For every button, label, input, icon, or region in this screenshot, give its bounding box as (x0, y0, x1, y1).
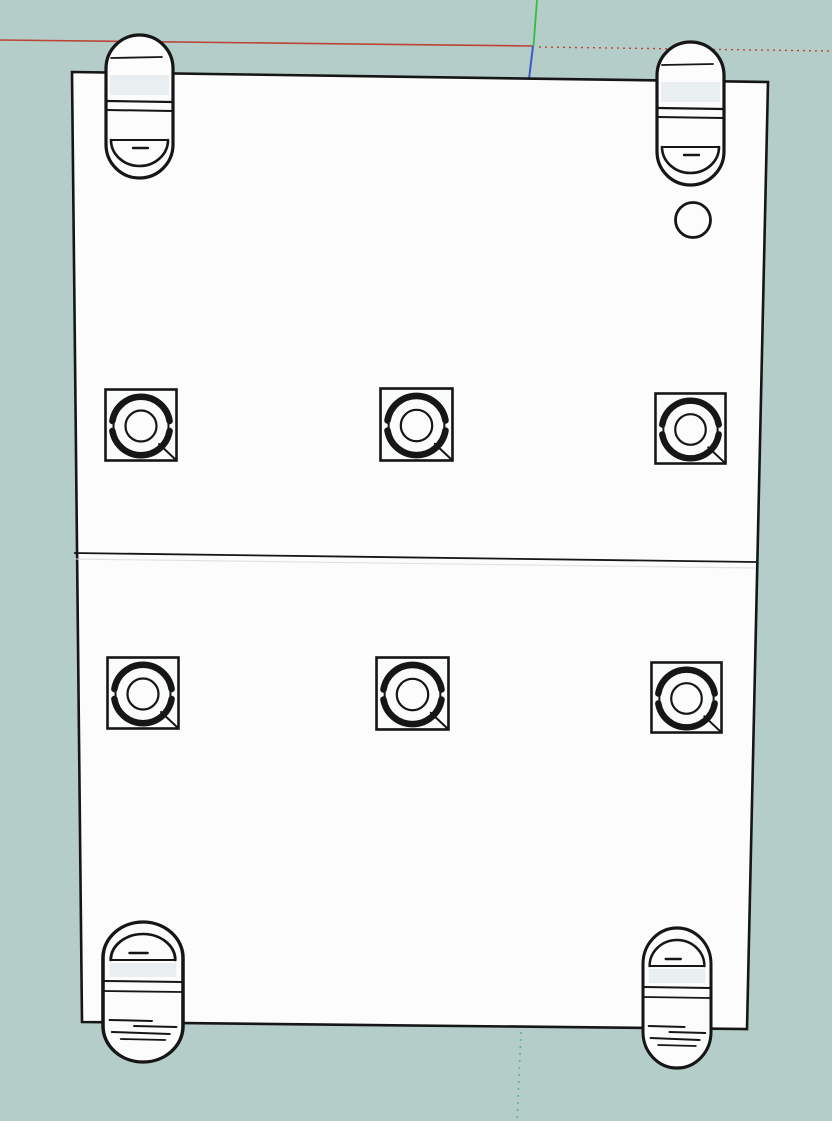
detail-ring (675, 414, 706, 445)
detail-edge (658, 108, 723, 109)
twist-lock-boss-row1-left[interactable] (106, 390, 177, 461)
detail-edge (649, 1026, 685, 1027)
detail-ring (128, 679, 159, 710)
detail-shading (649, 969, 706, 983)
mounting-clip-bottom-left[interactable] (103, 922, 183, 1062)
detail-ring (126, 411, 157, 442)
detail-edge (662, 64, 713, 65)
viewport-canvas[interactable] (0, 0, 832, 1121)
mounting-clip-top-right[interactable] (657, 42, 724, 185)
model-layer (72, 35, 768, 1068)
modeling-viewport[interactable] (0, 0, 832, 1121)
detail-edge (658, 117, 723, 118)
detail-shading (110, 963, 177, 977)
detail-edge (107, 101, 172, 102)
detail-edge (644, 997, 710, 998)
twist-lock-boss-row2-left[interactable] (108, 658, 179, 729)
detail-edge (669, 1032, 705, 1033)
twist-lock-boss-row1-center[interactable] (381, 389, 453, 461)
detail-ring (397, 679, 428, 710)
twist-lock-boss-row1-right[interactable] (655, 393, 725, 463)
twist-lock-boss-row2-center[interactable] (377, 658, 449, 730)
mounting-clip-bottom-right[interactable] (643, 928, 711, 1068)
detail-edge (121, 1039, 165, 1040)
detail-edge (104, 991, 182, 992)
detail-shading (110, 75, 169, 95)
twist-lock-boss-row2-right[interactable] (651, 662, 721, 732)
plate-face[interactable] (72, 72, 768, 1029)
detail-edge (658, 1045, 696, 1046)
detail-edge (104, 981, 182, 982)
detail-edge (110, 1020, 152, 1021)
detail-ring (401, 410, 432, 441)
detail-shading (661, 82, 720, 102)
detail-edge (134, 1026, 176, 1027)
detail-ring (671, 683, 702, 714)
mounting-clip-top-left[interactable] (106, 35, 173, 178)
detail-edge (107, 110, 172, 111)
detail-edge (644, 987, 710, 988)
detail-edge (111, 57, 162, 58)
